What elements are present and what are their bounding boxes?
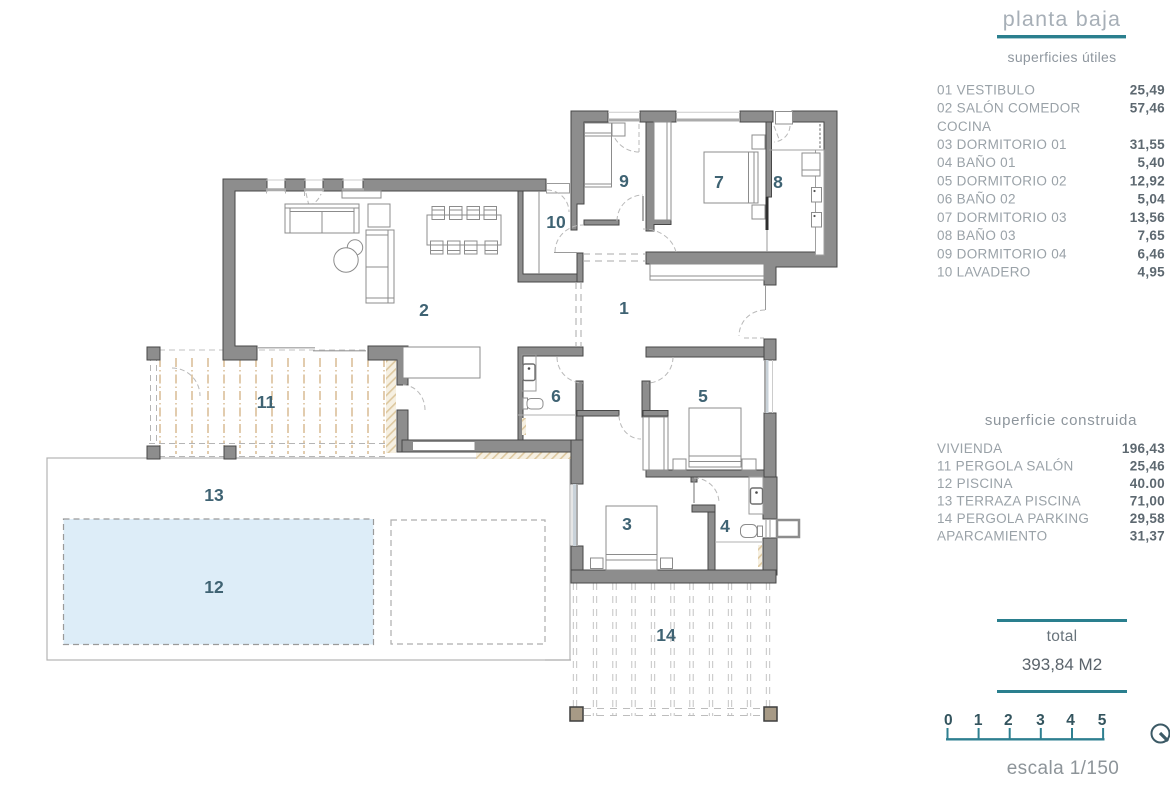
- svg-text:7,65: 7,65: [1138, 228, 1166, 243]
- svg-text:superficies útiles: superficies útiles: [1008, 49, 1117, 65]
- svg-text:7: 7: [714, 172, 724, 192]
- svg-text:9: 9: [619, 171, 629, 191]
- svg-text:4,95: 4,95: [1138, 265, 1166, 280]
- svg-text:29,58: 29,58: [1130, 511, 1165, 526]
- svg-text:25,49: 25,49: [1130, 82, 1165, 97]
- svg-text:12: 12: [204, 577, 224, 597]
- svg-text:planta baja: planta baja: [1003, 7, 1121, 31]
- svg-text:5: 5: [698, 386, 708, 406]
- svg-text:4: 4: [720, 516, 730, 536]
- svg-text:4: 4: [1066, 712, 1075, 729]
- svg-text:total: total: [1047, 628, 1078, 645]
- svg-text:12 PISCINA: 12 PISCINA: [937, 476, 1013, 491]
- svg-text:393,84 M2: 393,84 M2: [1022, 655, 1102, 674]
- svg-text:196,43: 196,43: [1122, 441, 1165, 456]
- svg-text:07 DORMITORIO 03: 07 DORMITORIO 03: [937, 210, 1067, 225]
- svg-text:APARCAMIENTO: APARCAMIENTO: [937, 528, 1047, 543]
- svg-text:14 PERGOLA PARKING: 14 PERGOLA PARKING: [937, 511, 1089, 526]
- svg-text:13: 13: [204, 485, 224, 505]
- svg-text:10: 10: [546, 212, 566, 232]
- svg-text:6: 6: [551, 386, 561, 406]
- svg-text:5,04: 5,04: [1138, 192, 1166, 207]
- svg-text:11: 11: [257, 392, 276, 412]
- svg-text:2: 2: [419, 300, 429, 320]
- svg-text:8: 8: [773, 172, 783, 192]
- svg-text:1: 1: [619, 298, 629, 318]
- svg-text:12,92: 12,92: [1130, 173, 1165, 188]
- svg-text:6,46: 6,46: [1138, 246, 1166, 261]
- svg-text:57,46: 57,46: [1130, 101, 1165, 116]
- svg-text:13,56: 13,56: [1130, 210, 1165, 225]
- svg-text:06 BAÑO 02: 06 BAÑO 02: [937, 192, 1016, 207]
- svg-text:0: 0: [944, 712, 953, 729]
- svg-text:VIVIENDA: VIVIENDA: [937, 441, 1002, 456]
- svg-text:04 BAÑO 01: 04 BAÑO 01: [937, 155, 1016, 170]
- svg-text:3: 3: [1036, 712, 1045, 729]
- svg-text:14: 14: [656, 625, 676, 645]
- svg-text:31,37: 31,37: [1130, 528, 1165, 543]
- svg-text:02 SALÓN COMEDOR: 02 SALÓN COMEDOR: [937, 101, 1081, 116]
- svg-text:40.00: 40.00: [1130, 476, 1165, 491]
- svg-text:1: 1: [974, 712, 983, 729]
- svg-text:3: 3: [622, 514, 632, 534]
- svg-text:05 DORMITORIO 02: 05 DORMITORIO 02: [937, 173, 1067, 188]
- svg-text:71,00: 71,00: [1130, 493, 1165, 508]
- svg-text:09 DORMITORIO 04: 09 DORMITORIO 04: [937, 246, 1067, 261]
- svg-text:01 VESTIBULO: 01 VESTIBULO: [937, 82, 1035, 97]
- svg-text:31,55: 31,55: [1130, 137, 1165, 152]
- svg-text:5: 5: [1098, 712, 1107, 729]
- svg-text:13 TERRAZA PISCINA: 13 TERRAZA PISCINA: [937, 493, 1081, 508]
- svg-text:08 BAÑO 03: 08 BAÑO 03: [937, 228, 1016, 243]
- svg-text:2: 2: [1004, 712, 1013, 729]
- svg-text:11 PERGOLA SALÓN: 11 PERGOLA SALÓN: [937, 458, 1074, 473]
- svg-text:superficie construida: superficie construida: [985, 412, 1137, 429]
- svg-text:COCINA: COCINA: [937, 119, 991, 134]
- svg-text:escala 1/150: escala 1/150: [1007, 758, 1120, 779]
- svg-text:03 DORMITORIO 01: 03 DORMITORIO 01: [937, 137, 1067, 152]
- svg-text:10 LAVADERO: 10 LAVADERO: [937, 265, 1031, 280]
- svg-text:5,40: 5,40: [1138, 155, 1165, 170]
- svg-text:25,46: 25,46: [1130, 458, 1165, 473]
